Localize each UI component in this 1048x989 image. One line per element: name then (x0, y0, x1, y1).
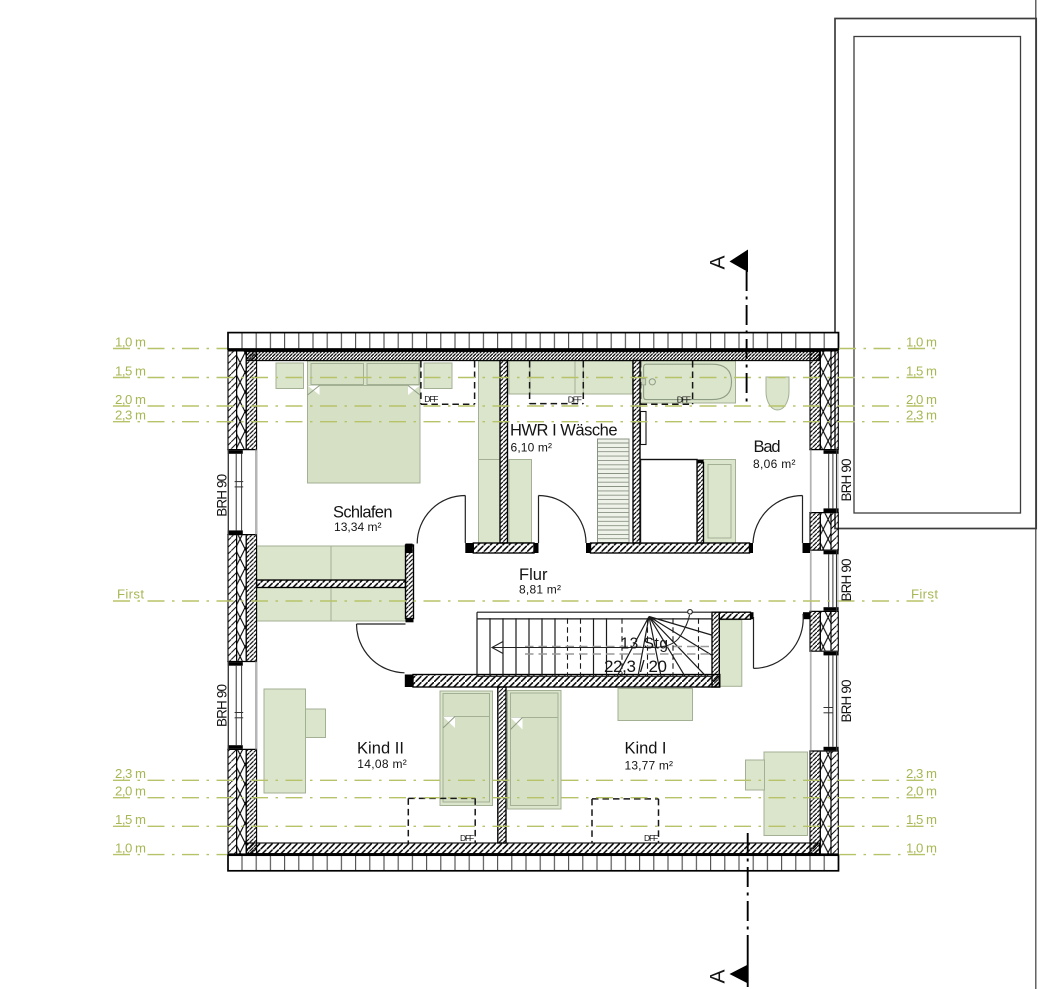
svg-text:A: A (707, 969, 730, 983)
svg-text:13,77 m²: 13,77 m² (625, 759, 674, 773)
svg-text:8,06 m²: 8,06 m² (753, 457, 796, 471)
svg-text:BRH 90: BRH 90 (839, 559, 854, 602)
svg-text:DFF: DFF (424, 394, 438, 404)
svg-text:1,0 m: 1,0 m (115, 334, 146, 349)
svg-text:DFF: DFF (644, 833, 658, 843)
svg-text:14,08 m²: 14,08 m² (357, 757, 407, 771)
svg-text:2,3 m: 2,3 m (115, 766, 146, 781)
svg-text:Kind II: Kind II (357, 740, 404, 758)
svg-text:1,0 m: 1,0 m (906, 840, 937, 855)
svg-text:First: First (911, 587, 938, 602)
svg-text:1,0 m: 1,0 m (906, 334, 937, 349)
svg-text:A: A (707, 255, 730, 269)
svg-text:22,3 / 20: 22,3 / 20 (604, 657, 667, 676)
svg-text:1,5 m: 1,5 m (906, 812, 937, 827)
svg-text:Kind I: Kind I (625, 740, 667, 758)
svg-text:8,81 m²: 8,81 m² (519, 583, 561, 597)
svg-text:6,10 m²: 6,10 m² (511, 441, 553, 455)
svg-text:1,0 m: 1,0 m (115, 840, 146, 855)
svg-text:Flur: Flur (519, 566, 548, 584)
svg-text:DFF: DFF (460, 833, 474, 843)
svg-text:1,5 m: 1,5 m (906, 363, 937, 378)
svg-text:13,34 m²: 13,34 m² (334, 520, 382, 534)
svg-text:2,0 m: 2,0 m (115, 392, 146, 407)
svg-text:BRH 90: BRH 90 (214, 684, 229, 727)
svg-text:2,0 m: 2,0 m (906, 784, 937, 799)
svg-text:2,0 m: 2,0 m (906, 392, 937, 407)
svg-text:2,3 m: 2,3 m (906, 766, 937, 781)
svg-text:2,3 m: 2,3 m (906, 408, 937, 423)
svg-text:Bad: Bad (754, 438, 781, 456)
svg-text:13 Stg: 13 Stg (621, 636, 669, 653)
svg-text:2,3 m: 2,3 m (115, 408, 146, 423)
svg-text:1,5 m: 1,5 m (115, 812, 146, 827)
svg-text:BRH 90: BRH 90 (839, 459, 854, 502)
svg-text:BRH 90: BRH 90 (214, 474, 229, 517)
svg-text:BRH 90: BRH 90 (839, 680, 854, 723)
svg-text:1,5 m: 1,5 m (115, 363, 146, 378)
svg-text:First: First (117, 587, 144, 602)
svg-text:HWR I Wäsche: HWR I Wäsche (510, 422, 618, 440)
svg-text:Schlafen: Schlafen (333, 504, 393, 522)
svg-text:DFF: DFF (568, 394, 582, 404)
svg-text:2,0 m: 2,0 m (115, 784, 146, 799)
svg-text:DFF: DFF (677, 395, 691, 405)
